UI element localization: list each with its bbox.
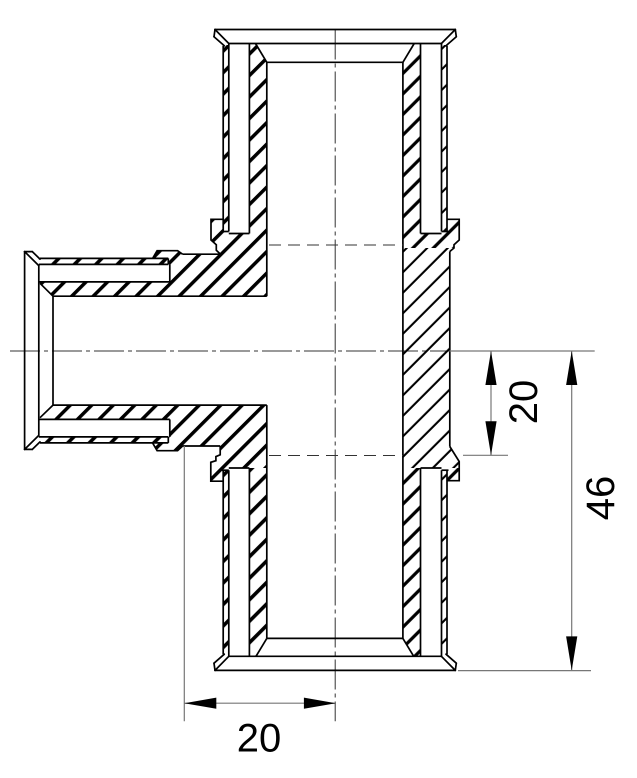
svg-text:20: 20 [502, 380, 546, 425]
svg-text:46: 46 [579, 476, 623, 521]
svg-text:20: 20 [237, 716, 282, 760]
